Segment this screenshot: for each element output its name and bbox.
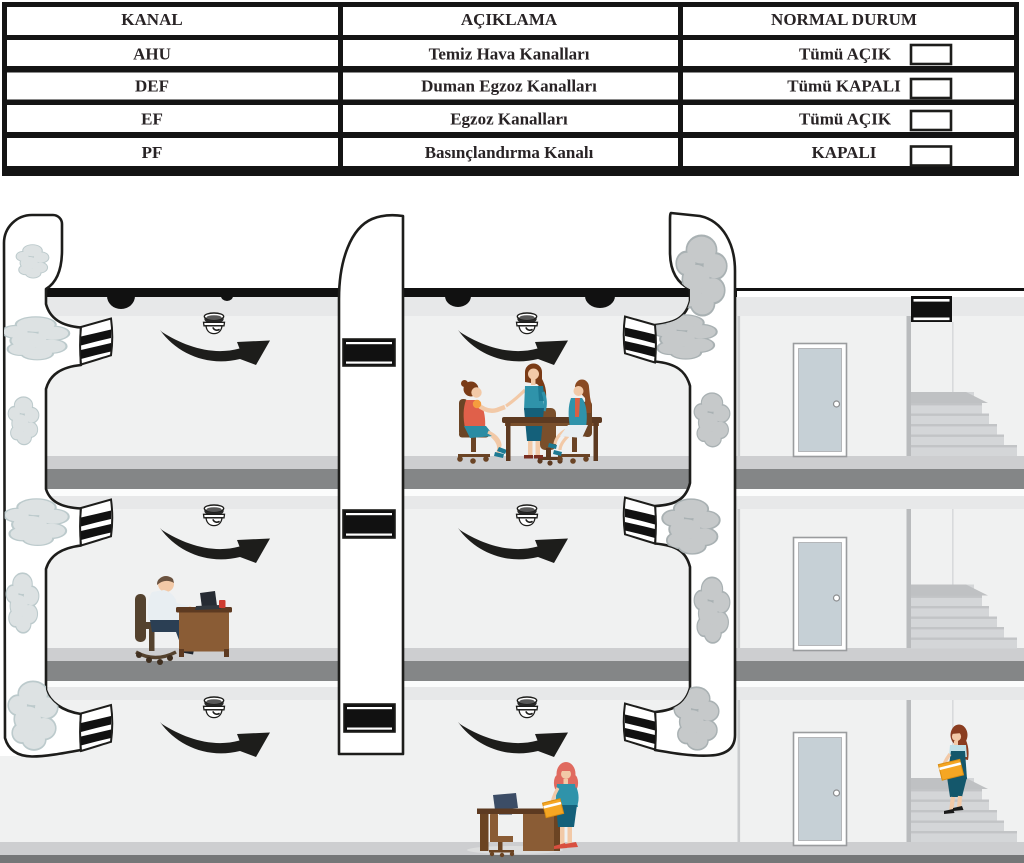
svg-text:Tümü KAPALI: Tümü KAPALI bbox=[787, 77, 901, 96]
svg-text:EF: EF bbox=[141, 110, 163, 129]
svg-text:AÇIKLAMA: AÇIKLAMA bbox=[461, 10, 558, 29]
svg-text:KANAL: KANAL bbox=[121, 10, 182, 29]
svg-text:Duman Egzoz Kanalları: Duman Egzoz Kanalları bbox=[421, 77, 597, 96]
svg-text:Tümü AÇIK: Tümü AÇIK bbox=[799, 45, 892, 64]
svg-text:KAPALI: KAPALI bbox=[812, 143, 877, 162]
svg-text:NORMAL DURUM: NORMAL DURUM bbox=[771, 10, 917, 29]
svg-text:Temiz Hava Kanalları: Temiz Hava Kanalları bbox=[429, 45, 590, 64]
svg-text:Basınçlandırma Kanalı: Basınçlandırma Kanalı bbox=[425, 143, 594, 162]
svg-text:PF: PF bbox=[142, 143, 163, 162]
svg-text:DEF: DEF bbox=[135, 77, 169, 96]
svg-text:Tümü AÇIK: Tümü AÇIK bbox=[799, 110, 892, 129]
svg-text:AHU: AHU bbox=[133, 45, 171, 64]
svg-text:Egzoz Kanalları: Egzoz Kanalları bbox=[450, 110, 568, 129]
